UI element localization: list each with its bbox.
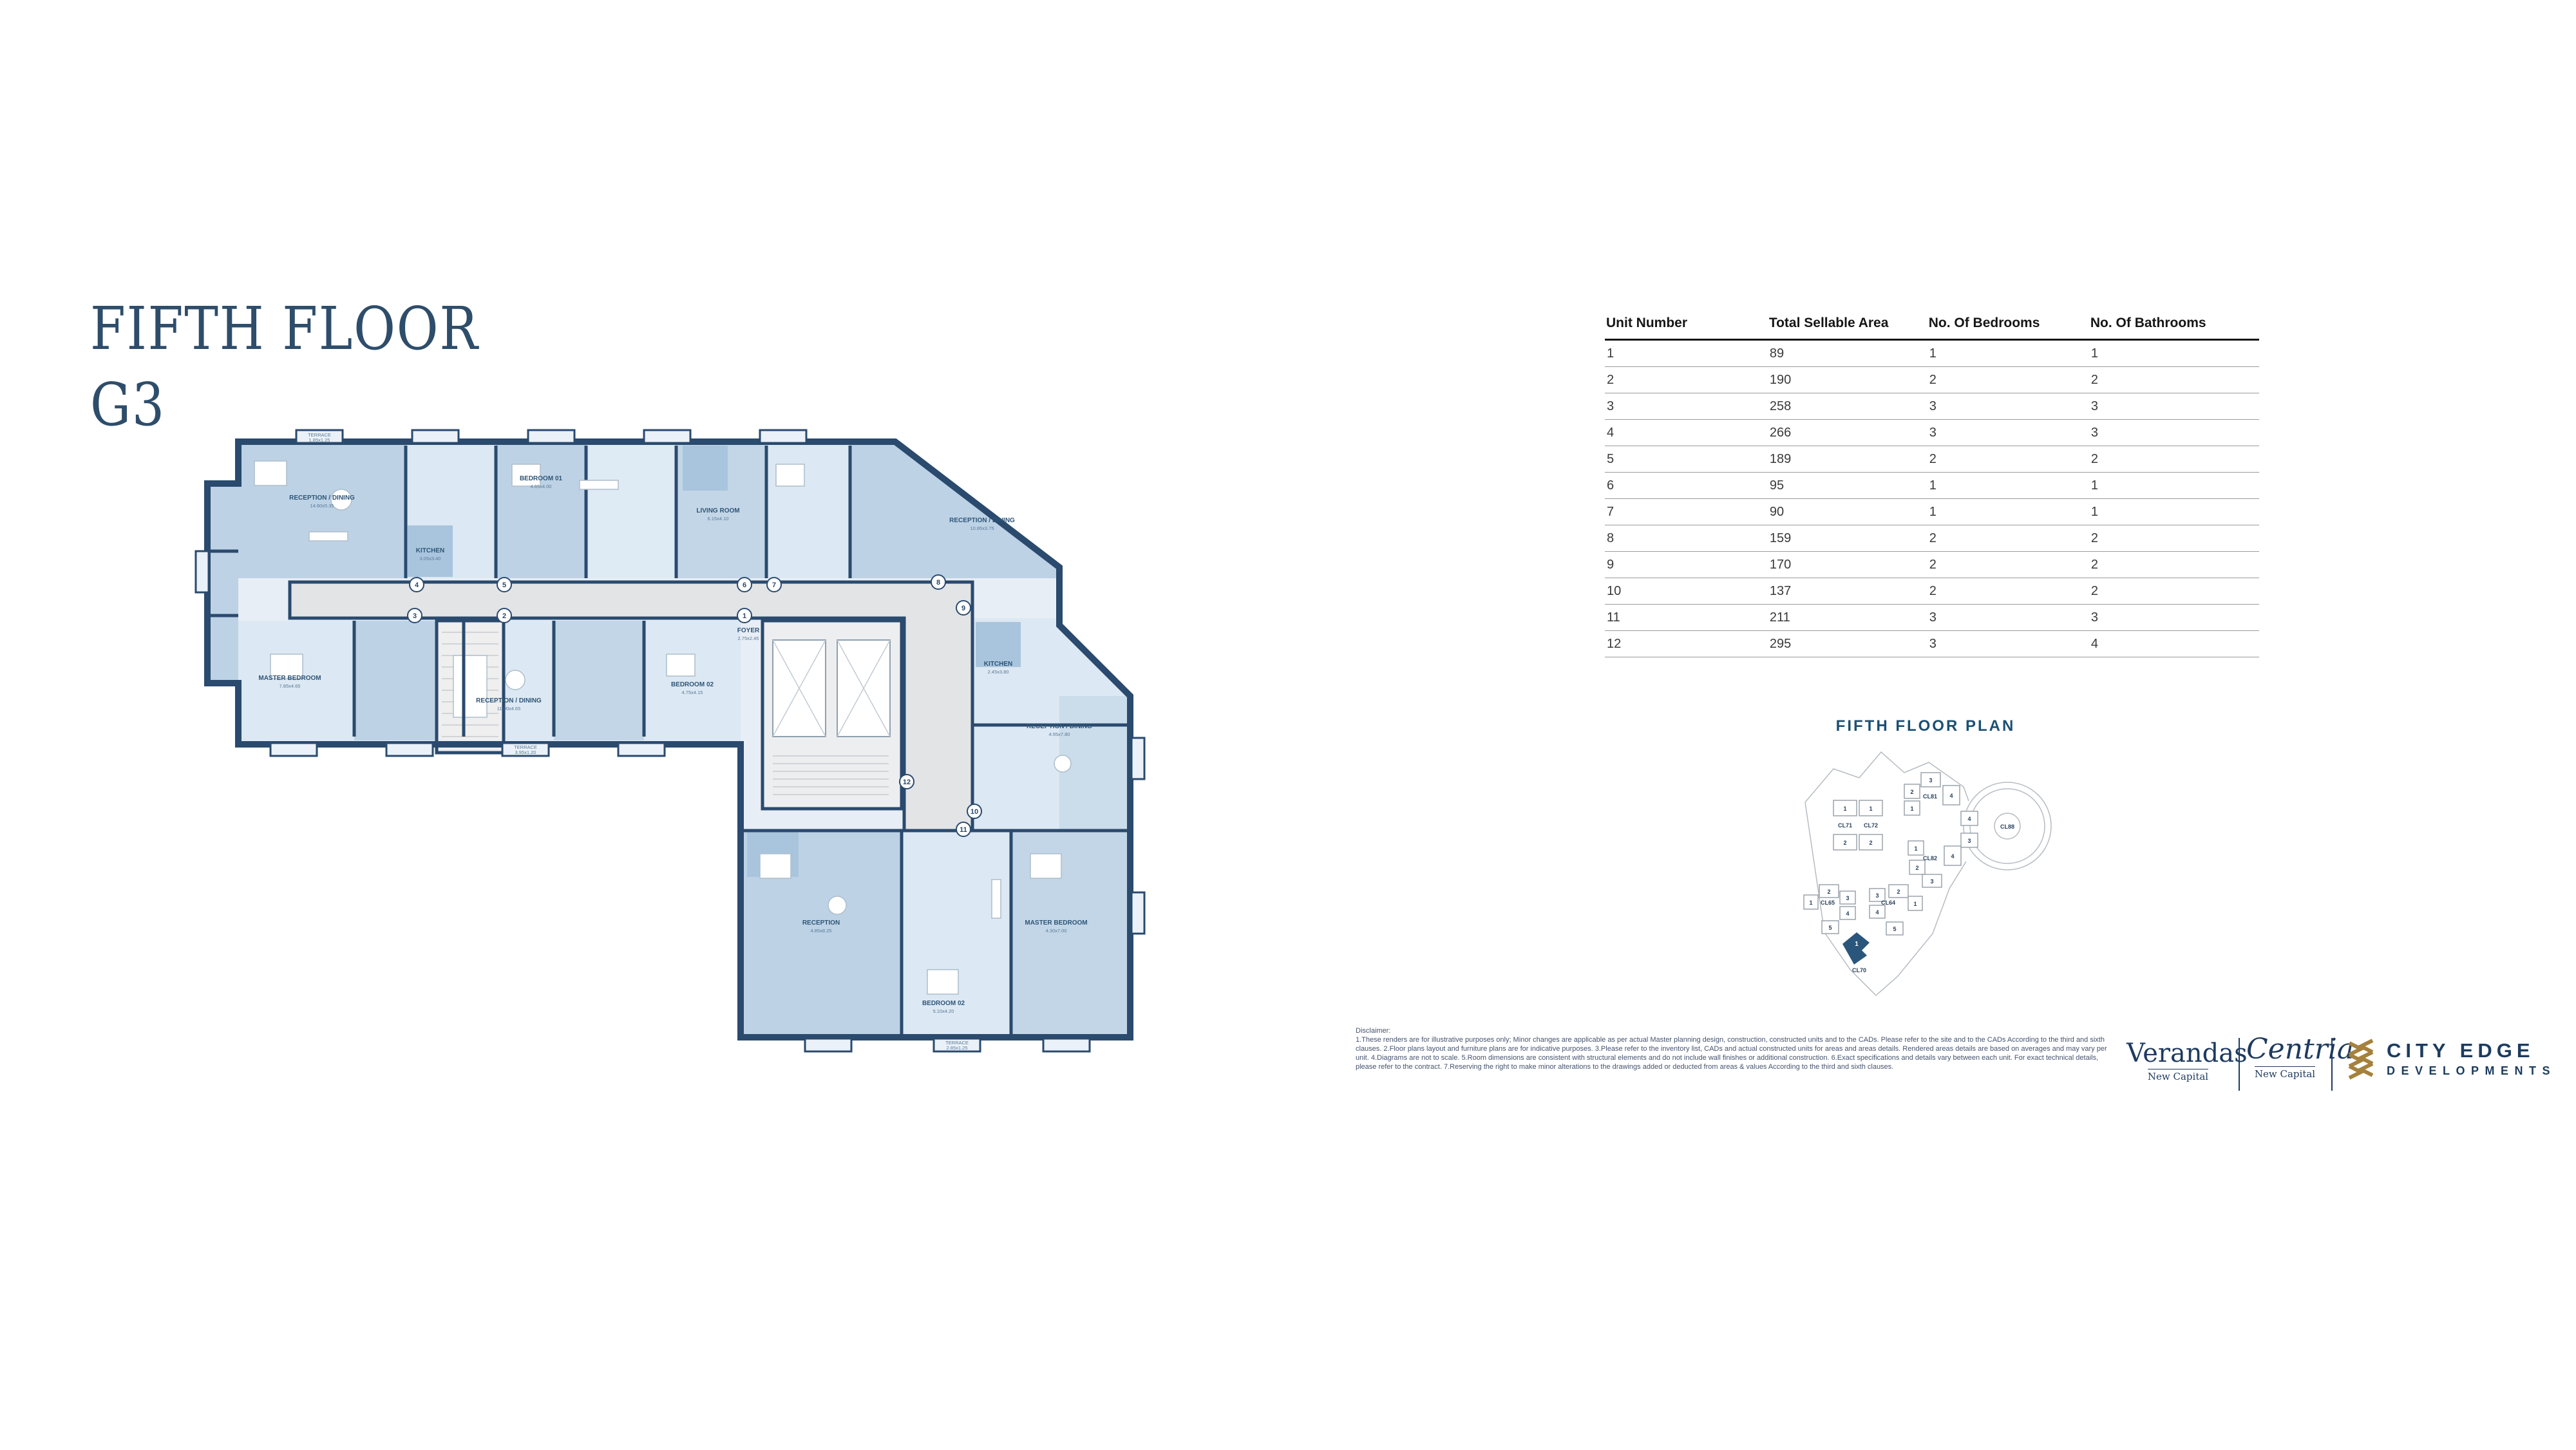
stair-core bbox=[437, 621, 504, 753]
table-cell: 90 bbox=[1768, 499, 1927, 525]
table-cell: 12 bbox=[1605, 631, 1768, 657]
table-row: 815922 bbox=[1605, 525, 2259, 552]
room-label: BEDROOM 01 bbox=[520, 475, 563, 482]
table-cell: 2 bbox=[1927, 367, 2089, 393]
keyplan-badge: 3 bbox=[1875, 892, 1879, 899]
centria-logo-name: Centria bbox=[2246, 1034, 2324, 1065]
table-cell: 7 bbox=[1605, 499, 1768, 525]
table-cell: 170 bbox=[1768, 552, 1927, 578]
table-cell: 2 bbox=[1927, 578, 2089, 605]
table-cell: 2 bbox=[1927, 525, 2089, 552]
table-cell: 9 bbox=[1605, 552, 1768, 578]
cluster-label: CL88 bbox=[2000, 824, 2014, 830]
col-bedrooms: No. Of Bedrooms bbox=[1927, 313, 2089, 340]
table-cell: 1 bbox=[2089, 473, 2259, 499]
city-edge-name: CITY EDGE bbox=[2387, 1039, 2556, 1062]
city-edge-icon bbox=[2344, 1038, 2378, 1080]
cluster-label: CL65 bbox=[1821, 899, 1835, 906]
room-dims: 4.65x4.00 bbox=[531, 484, 552, 489]
unit-table: Unit Number Total Sellable Area No. Of B… bbox=[1605, 313, 2259, 657]
logo-divider bbox=[2331, 1038, 2333, 1091]
table-cell: 3 bbox=[2089, 420, 2259, 446]
table-cell: 1 bbox=[1927, 473, 2089, 499]
room-label: RECEPTION / DINING bbox=[1027, 723, 1092, 730]
unit-marker: 1 bbox=[743, 612, 746, 620]
unit-marker: 3 bbox=[413, 612, 417, 620]
table-cell: 2 bbox=[2089, 525, 2259, 552]
table-cell: 8 bbox=[1605, 525, 1768, 552]
room-dims: 4.30x7.00 bbox=[1046, 928, 1067, 934]
verandas-logo: Verandas New Capital bbox=[2126, 1039, 2230, 1083]
table-cell: 190 bbox=[1768, 367, 1927, 393]
table-cell: 2 bbox=[2089, 552, 2259, 578]
table-cell: 211 bbox=[1768, 605, 1927, 631]
room-label: FOYER bbox=[737, 627, 760, 634]
room-dims: 4.75x4.15 bbox=[682, 690, 703, 695]
verandas-logo-name: Verandas bbox=[2126, 1039, 2230, 1068]
keyplan-badge: 4 bbox=[1846, 910, 1849, 917]
terrace-dims: 2.85x1.25 bbox=[947, 1045, 968, 1051]
table-header-row: Unit Number Total Sellable Area No. Of B… bbox=[1605, 313, 2259, 340]
table-cell: 10 bbox=[1605, 578, 1768, 605]
room-label: MASTER BEDROOM bbox=[1025, 919, 1087, 927]
cluster-label: CL64 bbox=[1881, 899, 1895, 906]
keyplan-badge: 1 bbox=[1910, 805, 1913, 812]
disclaimer-heading: Disclaimer: bbox=[1356, 1026, 2109, 1035]
table-row: 1229534 bbox=[1605, 631, 2259, 657]
keyplan-badge: 5 bbox=[1893, 926, 1896, 932]
city-edge-logo: CITY EDGE DEVELOPMENTS bbox=[2344, 1038, 2556, 1080]
keyplan-badge: 1 bbox=[1913, 901, 1917, 907]
room-dims: 2.75x2.45 bbox=[738, 636, 759, 641]
table-row: 79011 bbox=[1605, 499, 2259, 525]
keyplan-badge: 5 bbox=[1828, 925, 1832, 931]
table-cell: 3 bbox=[1605, 393, 1768, 420]
terrace-dims: 3.95x1.20 bbox=[515, 749, 536, 755]
table-cell: 258 bbox=[1768, 393, 1927, 420]
unit-marker: 11 bbox=[960, 826, 967, 834]
room-dims: 6.15x4.10 bbox=[708, 516, 729, 522]
table-cell: 295 bbox=[1768, 631, 1927, 657]
keyplan-badge: 2 bbox=[1915, 865, 1918, 871]
table-cell: 3 bbox=[1927, 605, 2089, 631]
keyplan-badge: 1 bbox=[1809, 899, 1812, 906]
room-label: MASTER BEDROOM bbox=[258, 675, 321, 682]
room-label: LIVING ROOM bbox=[696, 507, 739, 514]
keyplan-badge: 4 bbox=[1875, 909, 1879, 916]
table-cell: 137 bbox=[1768, 578, 1927, 605]
verandas-logo-subtitle: New Capital bbox=[2148, 1069, 2208, 1082]
unit-marker: 8 bbox=[936, 579, 940, 587]
table-cell: 5 bbox=[1605, 446, 1768, 473]
room-dims: 10.85x3.75 bbox=[970, 525, 994, 531]
unit-marker: 7 bbox=[772, 581, 776, 589]
unit-marker: 5 bbox=[502, 581, 506, 589]
room-dims: 4.85x8.25 bbox=[811, 928, 832, 934]
table-cell: 3 bbox=[1927, 631, 2089, 657]
table-row: 1013722 bbox=[1605, 578, 2259, 605]
table-cell: 1 bbox=[2089, 499, 2259, 525]
room-dims: 11.00x4.65 bbox=[497, 706, 521, 711]
table-cell: 2 bbox=[1927, 446, 2089, 473]
keyplan-badge: 2 bbox=[1827, 889, 1830, 895]
table-cell: 2 bbox=[2089, 367, 2259, 393]
col-sellable-area: Total Sellable Area bbox=[1768, 313, 1927, 340]
room-dims: 2.45x3.80 bbox=[988, 669, 1009, 675]
keyplan-highlight-number: 1 bbox=[1855, 941, 1859, 948]
elevator-core bbox=[762, 621, 902, 809]
table-row: 518922 bbox=[1605, 446, 2259, 473]
centria-logo-subtitle: New Capital bbox=[2255, 1066, 2315, 1080]
col-unit-number: Unit Number bbox=[1605, 313, 1768, 340]
table-cell: 2 bbox=[2089, 578, 2259, 605]
keyplan-badge: 1 bbox=[1869, 805, 1872, 812]
cluster-label: CL81 bbox=[1923, 793, 1937, 800]
cluster-label: CL71 bbox=[1838, 822, 1852, 829]
page: FIFTH FLOOR G3 bbox=[0, 0, 2576, 1450]
table-row: 426633 bbox=[1605, 420, 2259, 446]
table-cell: 3 bbox=[2089, 605, 2259, 631]
keyplan-badge: 2 bbox=[1897, 889, 1900, 895]
logo-divider bbox=[2239, 1038, 2240, 1091]
table-cell: 2 bbox=[1605, 367, 1768, 393]
table-cell: 189 bbox=[1768, 446, 1927, 473]
table-cell: 89 bbox=[1768, 340, 1927, 367]
table-cell: 159 bbox=[1768, 525, 1927, 552]
table-cell: 11 bbox=[1605, 605, 1768, 631]
cluster-label: CL82 bbox=[1923, 855, 1937, 862]
table-row: 69511 bbox=[1605, 473, 2259, 499]
room-label: RECEPTION / DINING bbox=[289, 494, 355, 502]
table-cell: 2 bbox=[2089, 446, 2259, 473]
table-cell: 266 bbox=[1768, 420, 1927, 446]
unit-marker: 4 bbox=[415, 581, 419, 589]
table-row: 219022 bbox=[1605, 367, 2259, 393]
cluster-label: CL70 bbox=[1852, 967, 1866, 974]
unit-marker: 12 bbox=[903, 778, 911, 786]
room-label: RECEPTION / DINING bbox=[949, 517, 1015, 524]
unit-marker: 6 bbox=[743, 581, 746, 589]
room-dims: 4.95x7.80 bbox=[1049, 731, 1070, 737]
table-cell: 3 bbox=[2089, 393, 2259, 420]
keyplan-badge: 4 bbox=[1949, 793, 1953, 799]
keyplan-badge: 3 bbox=[1967, 838, 1971, 844]
room-dims: 5.10x4.20 bbox=[933, 1008, 954, 1014]
keyplan-badge: 1 bbox=[1843, 805, 1846, 812]
disclaimer: Disclaimer: 1.These renders are for illu… bbox=[1356, 1026, 2109, 1071]
room-dims: 3.05x3.40 bbox=[420, 556, 441, 561]
keyplan-badge: 3 bbox=[1846, 895, 1849, 901]
keyplan-badge: 3 bbox=[1929, 777, 1932, 784]
room-label: KITCHEN bbox=[984, 661, 1012, 668]
page-title-line1: FIFTH FLOOR bbox=[90, 291, 479, 367]
table-cell: 1 bbox=[2089, 340, 2259, 367]
table-cell: 3 bbox=[1927, 420, 2089, 446]
room-label: BEDROOM 02 bbox=[671, 681, 714, 688]
key-plan-title: FIFTH FLOOR PLAN bbox=[1819, 717, 2032, 735]
table-row: 917022 bbox=[1605, 552, 2259, 578]
disclaimer-body: 1.These renders are for illustrative pur… bbox=[1356, 1036, 2107, 1071]
table-row: 18911 bbox=[1605, 340, 2259, 367]
unit-marker: 9 bbox=[961, 605, 965, 612]
keyplan-badge: 2 bbox=[1869, 840, 1872, 846]
table-cell: 6 bbox=[1605, 473, 1768, 499]
centria-logo: Centria New Capital bbox=[2246, 1034, 2324, 1080]
keyplan-badge: 2 bbox=[1910, 789, 1913, 795]
room-label: KITCHEN bbox=[416, 547, 444, 554]
room-label: RECEPTION / DINING bbox=[476, 697, 542, 704]
table-cell: 1 bbox=[1605, 340, 1768, 367]
unit-marker: 2 bbox=[502, 612, 506, 620]
table-cell: 1 bbox=[1927, 499, 2089, 525]
table-row: 325833 bbox=[1605, 393, 2259, 420]
table-cell: 4 bbox=[2089, 631, 2259, 657]
table-cell: 3 bbox=[1927, 393, 2089, 420]
keyplan-badge: 4 bbox=[1967, 816, 1971, 822]
keyplan-badge: 2 bbox=[1843, 840, 1846, 846]
col-bathrooms: No. Of Bathrooms bbox=[2089, 313, 2259, 340]
keyplan-badge: 4 bbox=[1951, 853, 1954, 860]
table-row: 1121133 bbox=[1605, 605, 2259, 631]
table-cell: 4 bbox=[1605, 420, 1768, 446]
room-label: RECEPTION bbox=[802, 919, 840, 927]
city-edge-developments: DEVELOPMENTS bbox=[2387, 1062, 2556, 1079]
unit-table-body: 1891121902232583342663351892269511790118… bbox=[1605, 340, 2259, 657]
keyplan-highlight-building bbox=[1842, 932, 1870, 965]
table-cell: 95 bbox=[1768, 473, 1927, 499]
keyplan-badge: 1 bbox=[1914, 845, 1917, 852]
unit-table-section: Unit Number Total Sellable Area No. Of B… bbox=[1605, 313, 2259, 657]
city-edge-text: CITY EDGE DEVELOPMENTS bbox=[2387, 1039, 2556, 1079]
table-cell: 1 bbox=[1927, 340, 2089, 367]
terrace-dims: 1.85x1.25 bbox=[309, 437, 330, 443]
room-label: BEDROOM 02 bbox=[922, 1000, 965, 1007]
room-dims: 14.60x5.35 bbox=[310, 503, 334, 509]
table-cell: 2 bbox=[1927, 552, 2089, 578]
cluster-label: CL72 bbox=[1864, 822, 1878, 829]
keyplan-badge: 3 bbox=[1930, 878, 1933, 885]
key-plan-diagram: 1 1 2 1 2 3 2 1 4 1 4 2 3 4 3 2 1 3 4 5 … bbox=[1800, 739, 2109, 1010]
unit-marker: 10 bbox=[971, 808, 978, 816]
floor-plan-drawing: RECEPTION / DINING 14.60x5.35 BEDROOM 01… bbox=[193, 403, 1153, 1055]
room-dims: 7.85x4.65 bbox=[279, 683, 301, 689]
